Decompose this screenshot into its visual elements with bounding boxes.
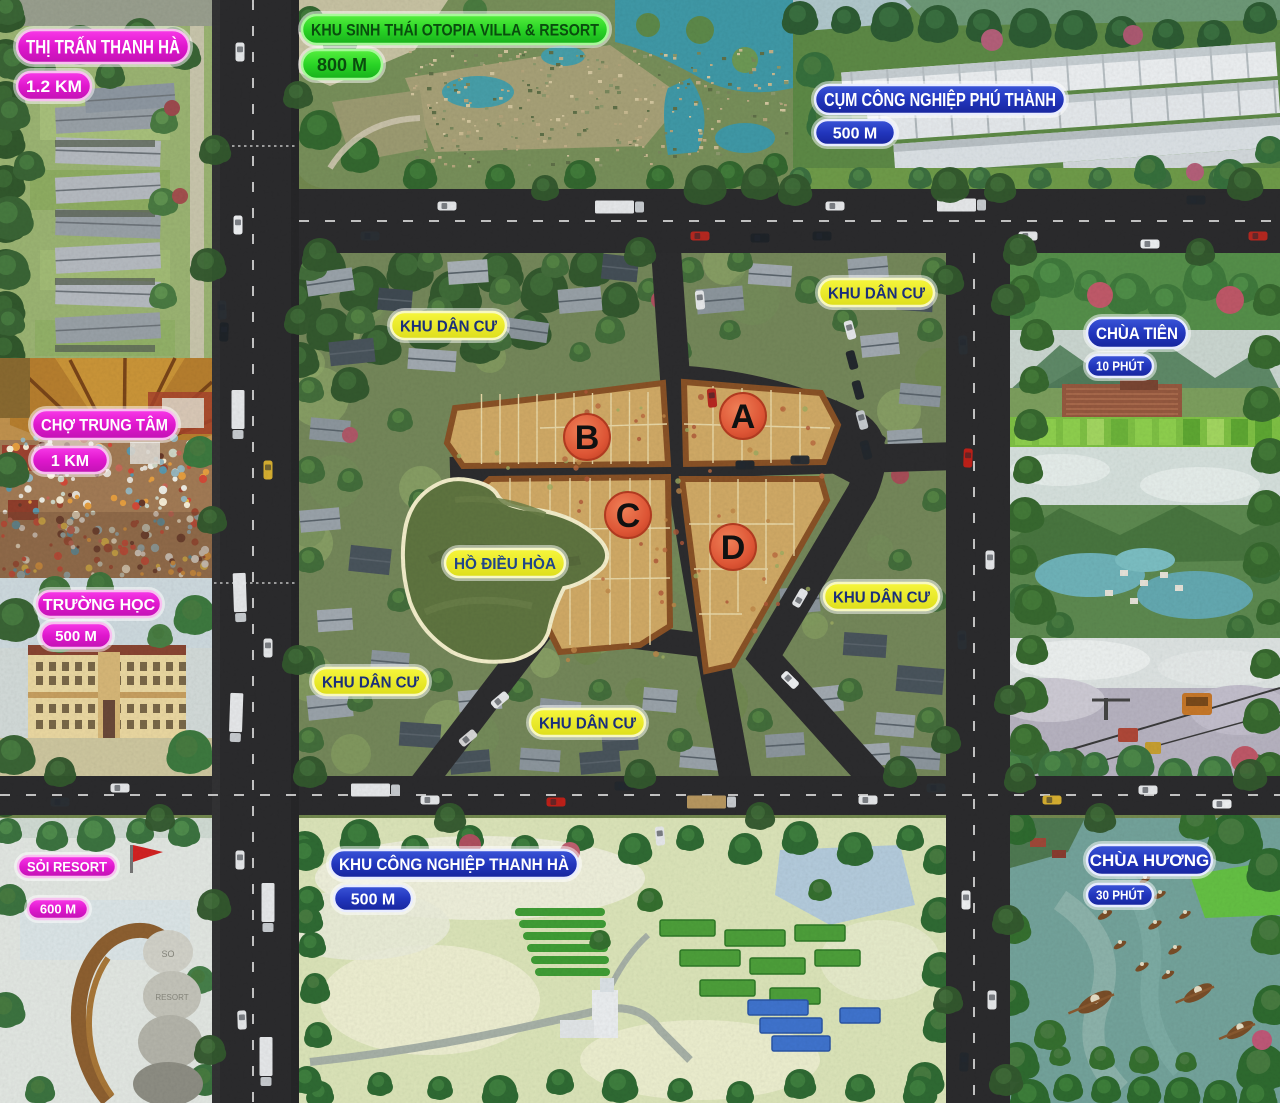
svg-text:KHU CÔNG NGHIỆP THANH HÀ: KHU CÔNG NGHIỆP THANH HÀ (339, 855, 569, 874)
svg-text:600 M: 600 M (40, 902, 76, 917)
svg-text:800 M: 800 M (317, 55, 367, 75)
svg-text:KHU DÂN CƯ: KHU DÂN CƯ (539, 713, 637, 732)
svg-text:KHU DÂN CƯ: KHU DÂN CƯ (322, 672, 420, 691)
svg-text:A: A (731, 398, 756, 436)
svg-text:HỒ ĐIỀU HÒA: HỒ ĐIỀU HÒA (454, 554, 556, 573)
svg-text:30 PHÚT: 30 PHÚT (1096, 888, 1144, 903)
svg-text:D: D (721, 529, 746, 567)
svg-text:KHU DÂN CƯ: KHU DÂN CƯ (833, 587, 931, 606)
svg-text:CHỢ TRUNG TÂM: CHỢ TRUNG TÂM (41, 416, 168, 435)
svg-text:10 PHÚT: 10 PHÚT (1096, 359, 1144, 374)
svg-text:TRƯỜNG HỌC: TRƯỜNG HỌC (43, 595, 156, 614)
svg-text:500 M: 500 M (351, 891, 395, 908)
svg-text:KHU DÂN CƯ: KHU DÂN CƯ (828, 283, 926, 302)
svg-text:500 M: 500 M (55, 628, 97, 645)
svg-text:CỤM CÔNG NGHIỆP PHÚ THÀNH: CỤM CÔNG NGHIỆP PHÚ THÀNH (824, 89, 1056, 110)
svg-text:CHÙA HƯƠNG: CHÙA HƯƠNG (1090, 851, 1210, 870)
svg-text:C: C (616, 497, 641, 535)
svg-text:500 M: 500 M (833, 125, 877, 142)
svg-text:THỊ TRẤN THANH HÀ: THỊ TRẤN THANH HÀ (26, 36, 180, 58)
svg-text:SỎI RESORT: SỎI RESORT (27, 858, 107, 875)
svg-text:KHU SINH THÁI OTOPIA VILLA & R: KHU SINH THÁI OTOPIA VILLA & RESORT (311, 21, 600, 40)
svg-text:CHÙA TIÊN: CHÙA TIÊN (1096, 324, 1178, 343)
svg-text:1 KM: 1 KM (51, 453, 89, 470)
svg-text:KHU DÂN CƯ: KHU DÂN CƯ (400, 316, 498, 335)
svg-text:1.2 KM: 1.2 KM (26, 77, 82, 96)
svg-text:B: B (575, 419, 600, 457)
